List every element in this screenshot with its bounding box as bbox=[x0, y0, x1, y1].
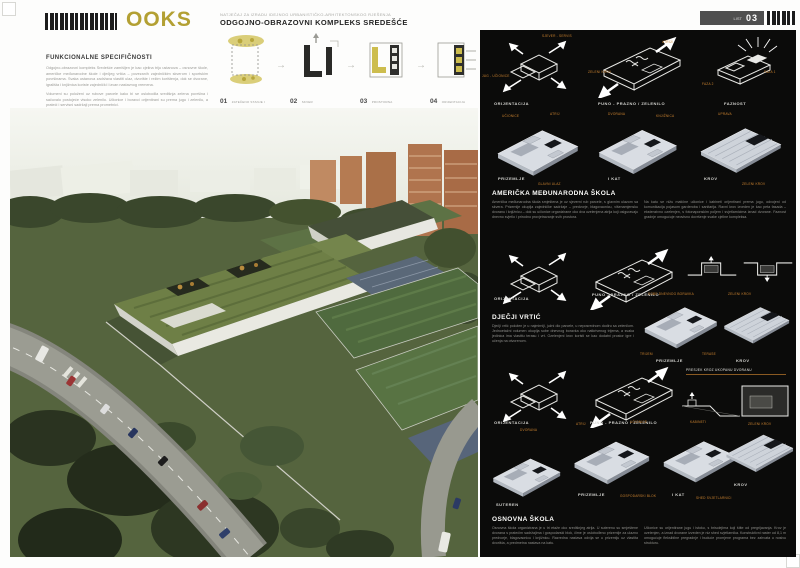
sheet-number: 03 bbox=[746, 13, 758, 23]
barcode-left-icon bbox=[45, 13, 117, 30]
leader-line bbox=[686, 374, 786, 375]
school1-title: AMERIČKA MEĐUNARODNA ŠKOLA bbox=[492, 190, 616, 197]
plate-label: ATRIJ bbox=[576, 422, 586, 426]
concept-step-2: 02 SKVER bbox=[290, 33, 342, 108]
plate-label: ZELENI KROV bbox=[728, 292, 751, 296]
diagram-label: JUG - UČIONICE bbox=[482, 74, 510, 78]
diagram-label: FAZA 2 bbox=[702, 82, 714, 86]
kindergarten-title: DJEČJI VRTIĆ bbox=[492, 314, 541, 321]
analysis-panel: JUG - UČIONICE SJEVER - SERVIS ZELENI KR… bbox=[480, 30, 796, 557]
kindergarten-text: Dječji vrtić položen je u najmirniji, ju… bbox=[492, 324, 634, 344]
plate-label: TERASE bbox=[702, 352, 716, 356]
plate-label: UPRAVA bbox=[718, 112, 732, 116]
plate-label: GOSPODARSKI BLOK bbox=[620, 494, 656, 498]
school1-col2: Na katu se nižu matične učionice i kabin… bbox=[644, 200, 786, 220]
plate-caption: KROV bbox=[734, 482, 748, 487]
plate-label: KABINETI bbox=[690, 420, 706, 424]
diagram-caption: ORIJENTACIJA bbox=[494, 296, 529, 301]
plate-label: UČIONICE bbox=[630, 420, 647, 424]
sheet-number-bar: LIST 03 bbox=[700, 11, 764, 25]
arrow-right-icon: → bbox=[416, 61, 426, 71]
concept-step-1-number: 01 bbox=[220, 98, 227, 105]
concept-step-2-number: 02 bbox=[290, 98, 297, 105]
plate-caption: SUTEREN bbox=[496, 502, 519, 507]
phasing-diagram bbox=[696, 36, 786, 98]
plate-caption: PRIZEMLJE bbox=[578, 492, 605, 497]
plate-label: GLAVNI ULAZ bbox=[538, 182, 561, 186]
diagram-label: ZELENI KROV bbox=[588, 70, 611, 74]
arrow-right-icon: → bbox=[276, 61, 286, 71]
diagram-label: SJEVER - SERVIS bbox=[542, 34, 572, 38]
presentation-board: OOKS NATJEČAJ ZA IZRADU IDEJNOG URBANIST… bbox=[0, 0, 800, 568]
diagram-caption: ORIJENTACIJA bbox=[494, 420, 529, 425]
plate-label: SHED SVJETLARNICI bbox=[696, 496, 732, 500]
plate-roof bbox=[722, 426, 796, 478]
barcode-right-icon bbox=[767, 11, 795, 25]
plate-label: DVORANA bbox=[608, 112, 625, 116]
kg-floor-plate-ground bbox=[638, 298, 722, 354]
concept-step-4-number: 04 bbox=[430, 98, 437, 105]
intro-paragraph-1: Odgojno-obrazovni kompleks Sredešće zami… bbox=[46, 66, 208, 88]
plate-label: TRIJEM bbox=[640, 352, 653, 356]
floor-plate-first bbox=[592, 120, 682, 180]
school2-col1: Osnovna škola organizirana je u tri etaž… bbox=[492, 526, 638, 546]
section-detail-a bbox=[686, 256, 738, 282]
concept-step-3-number: 03 bbox=[360, 98, 367, 105]
diagram-caption: FAZNOST bbox=[724, 101, 746, 106]
plate-basement bbox=[486, 450, 566, 502]
aerial-rendering-image bbox=[10, 108, 478, 557]
plate-caption: PRIZEMLJE bbox=[656, 358, 683, 363]
logo-text: OOKS bbox=[126, 8, 192, 32]
plate-label: KNJIŽNICA bbox=[656, 114, 674, 118]
plate-label: UČIONICE bbox=[502, 114, 519, 118]
plate-label: ZELENI KROV bbox=[742, 182, 765, 186]
solid-void-diagram-3 bbox=[584, 366, 679, 428]
intro-paragraph-2: Volumeni su položeni uz rubove parcele k… bbox=[46, 92, 208, 109]
plate-label: ATRIJ bbox=[550, 112, 560, 116]
kg-floor-plate-roof bbox=[720, 298, 792, 350]
diagram-caption: ORIJENTACIJA bbox=[494, 101, 529, 106]
floor-plate-roof bbox=[692, 118, 788, 180]
concept-diagram-1 bbox=[220, 33, 272, 85]
school2-title: OSNOVNA ŠKOLA bbox=[492, 516, 554, 523]
arrow-right-icon: → bbox=[346, 61, 356, 71]
buried-hall-section-diagram bbox=[680, 382, 790, 422]
concept-diagram-3 bbox=[360, 33, 412, 85]
section-detail-b bbox=[742, 256, 794, 282]
plate-caption: I KAT bbox=[608, 176, 621, 181]
floor-plate-ground bbox=[490, 120, 584, 182]
orientation-diagram-3 bbox=[488, 366, 580, 428]
aerial-rendering bbox=[10, 108, 478, 557]
board-title: ODGOJNO-OBRAZOVNI KOMPLEKS SREDEŠĆE bbox=[220, 18, 408, 27]
plate-caption: PRIZEMLJE bbox=[498, 176, 525, 181]
section-detail-caption: PRESJEK KROZ UKOPANU DVORANU bbox=[686, 368, 752, 372]
school2-col2: Učionice su orijentirane jugu i istoku, … bbox=[644, 526, 786, 546]
intro-title: FUNKCIONALNE SPECIFIČNOSTI bbox=[46, 55, 208, 61]
sheet-label: LIST bbox=[734, 16, 742, 21]
solid-void-diagram-1 bbox=[592, 36, 687, 98]
concept-diagram-4 bbox=[430, 33, 482, 85]
diagram-label: ATRIJI bbox=[662, 40, 673, 44]
plate-ground bbox=[568, 432, 654, 490]
plate-label: DVORANA bbox=[520, 428, 537, 432]
diagram-label: FAZA 1 bbox=[764, 70, 776, 74]
diagram-caption: PUNO - PRAZNO / ZELENILO bbox=[598, 101, 665, 106]
concept-strip: 01 ZATEČENO STANJE I ZELENILO → 02 SKVER… bbox=[214, 33, 480, 105]
orientation-diagram-1 bbox=[488, 36, 580, 98]
intro-section: FUNKCIONALNE SPECIFIČNOSTI Odgojno-obraz… bbox=[46, 55, 208, 109]
header: OOKS NATJEČAJ ZA IZRADU IDEJNOG URBANIST… bbox=[0, 0, 800, 32]
concept-diagram-2 bbox=[290, 33, 342, 85]
plate-caption: KROV bbox=[736, 358, 750, 363]
concept-step-2-label: SKVER bbox=[302, 100, 313, 104]
competition-line: NATJEČAJ ZA IZRADU IDEJNOG URBANISTIČKO-… bbox=[220, 12, 391, 17]
plate-caption: KROV bbox=[704, 176, 718, 181]
plate-label: SOBE DNEVNOG BORAVKA bbox=[648, 292, 694, 296]
plate-caption: I KAT bbox=[672, 492, 685, 497]
school1-col1: Američka međunarodna škola smještena je … bbox=[492, 200, 638, 220]
